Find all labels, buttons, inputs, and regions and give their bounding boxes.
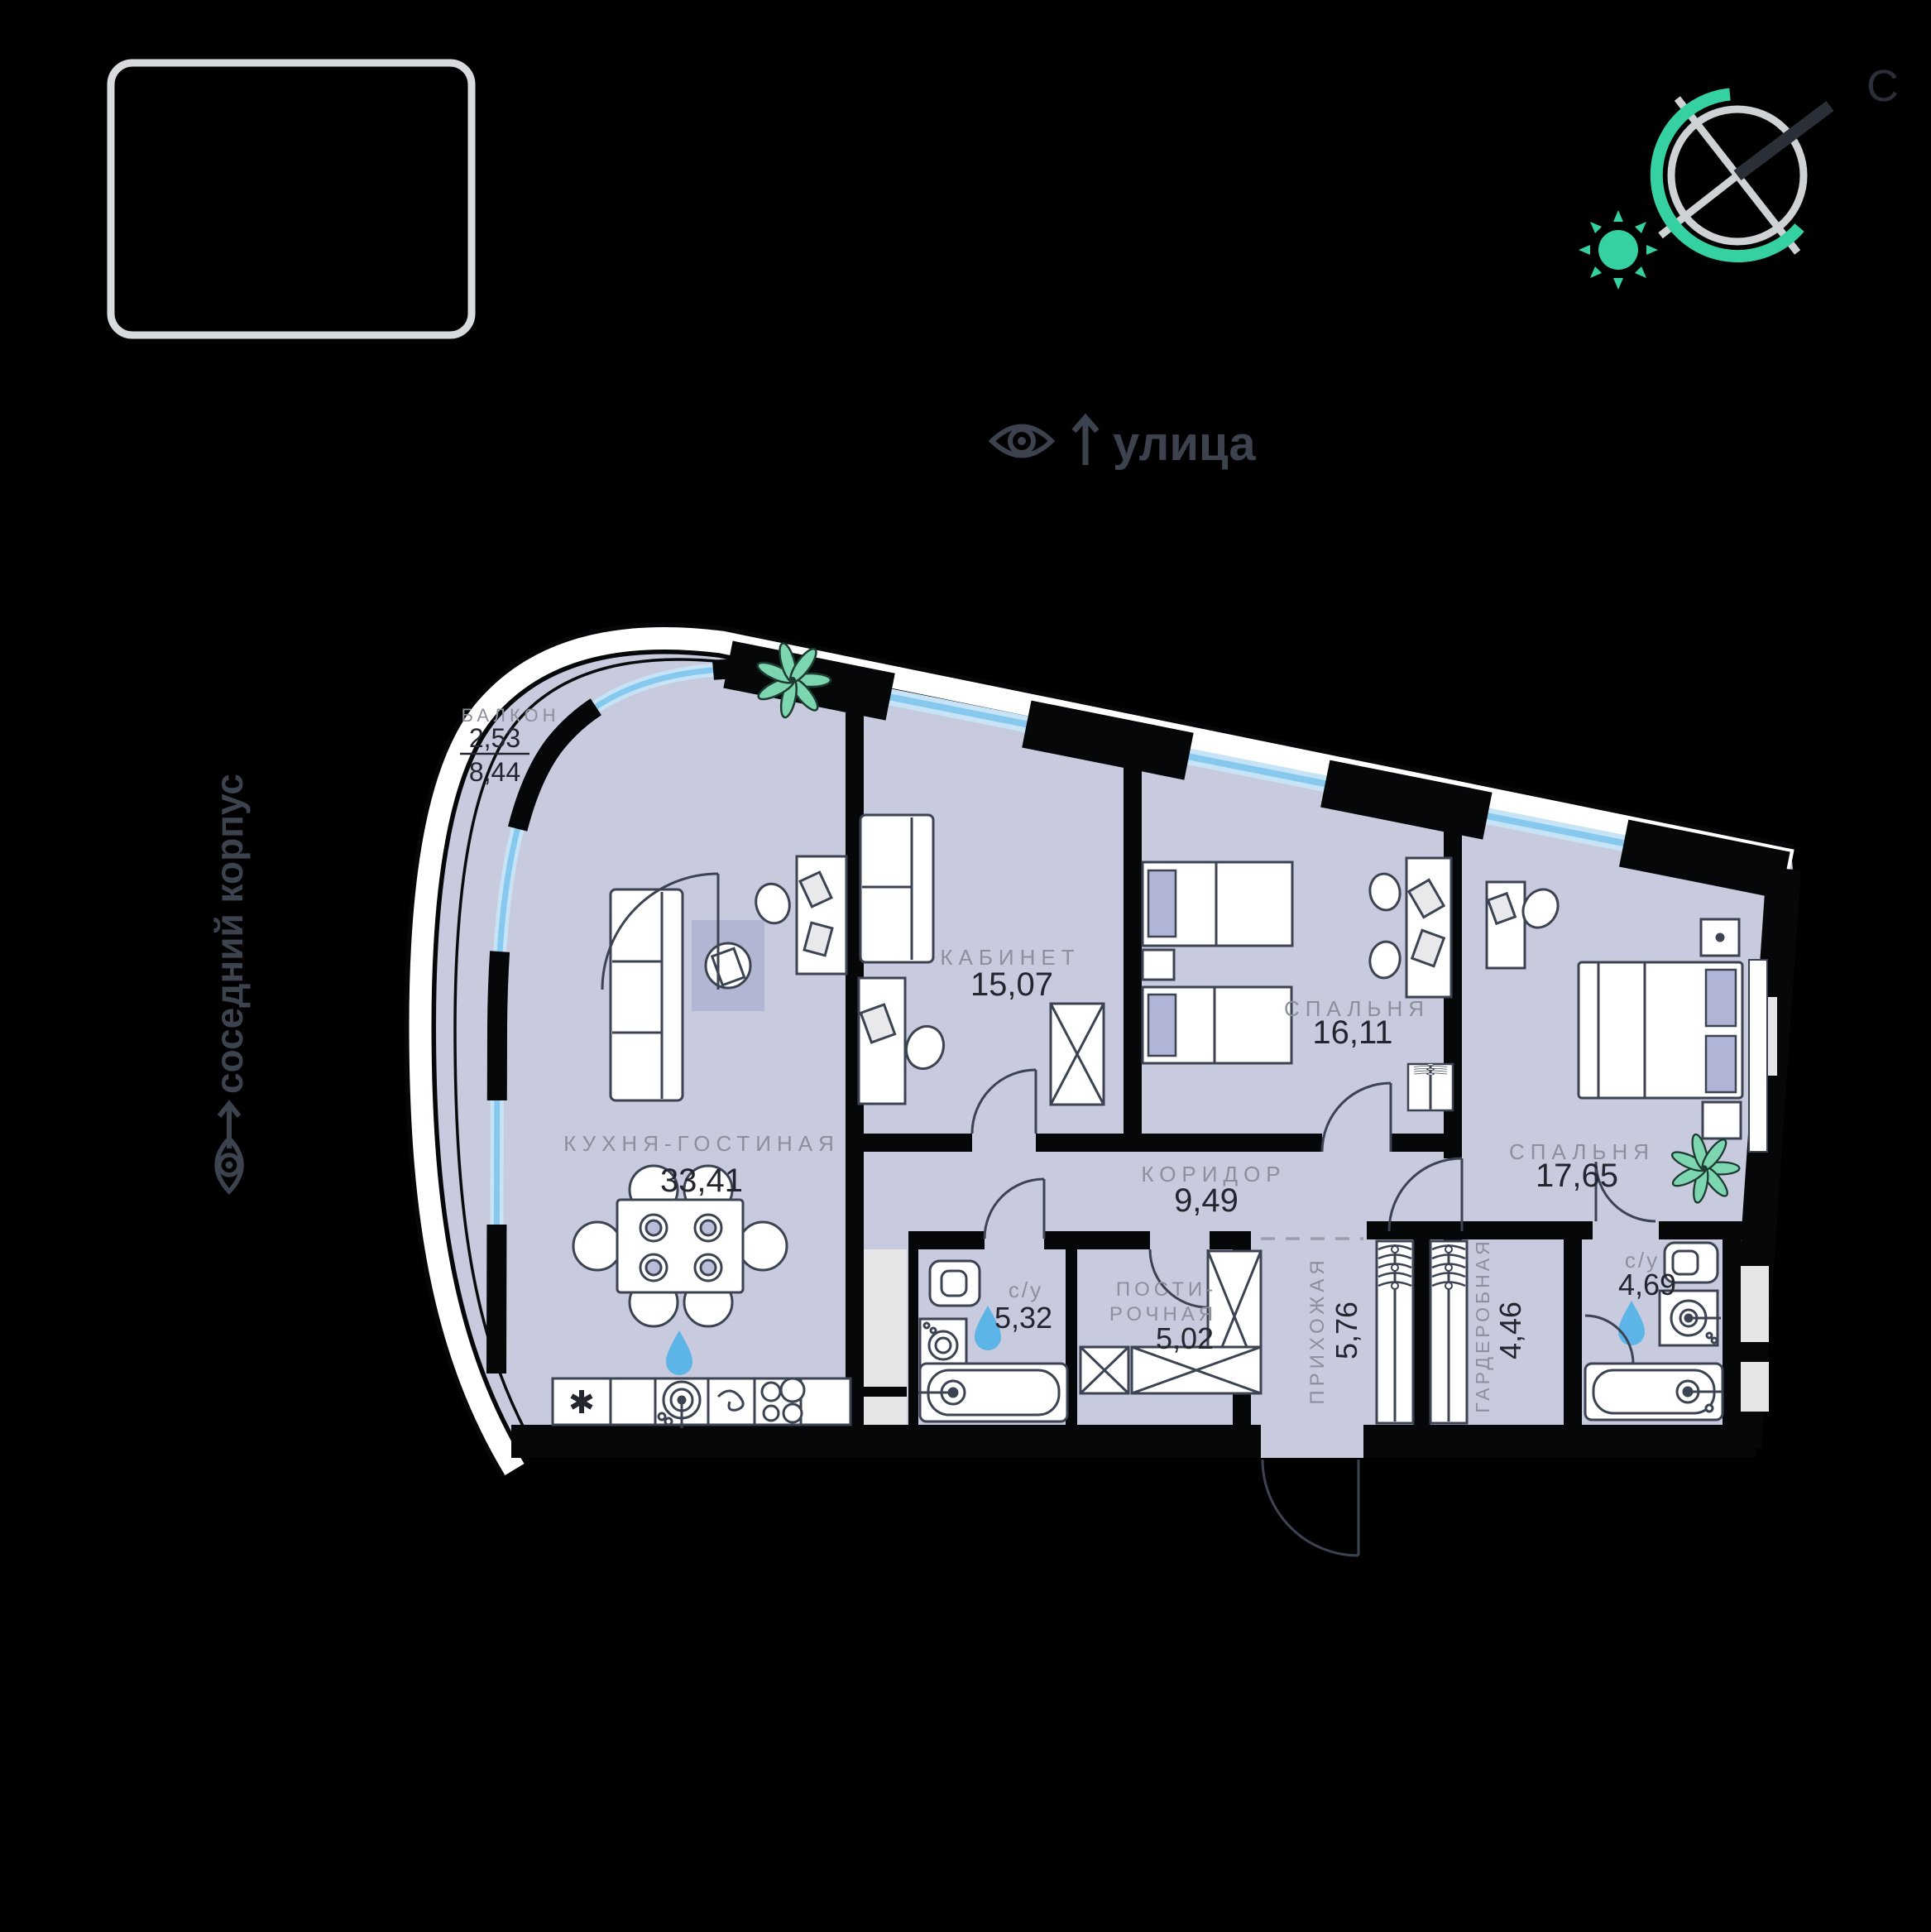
room-area-office: 15,07: [970, 966, 1053, 1003]
floorplan-page: БАЛКОН 2,53 8,44 КУХНЯ-ГОСТИНАЯ 33,41 КА…: [0, 0, 1931, 1932]
room-label-kitchen-living: КУХНЯ-ГОСТИНАЯ: [563, 1131, 840, 1156]
room-area-balcony-upper: 2,53: [469, 723, 520, 753]
room-label-hallway: ПРИХОЖАЯ: [1306, 1256, 1329, 1404]
compass-north-label: С: [1866, 61, 1899, 111]
room-area-hallway: 5,76: [1330, 1302, 1363, 1359]
window-sill-bedroom2: [1749, 960, 1767, 1152]
neighbor-label: соседний корпус: [208, 774, 251, 1094]
room-label-bathroom1: с/у: [1009, 1278, 1043, 1302]
room-label-wardrobe: ГАРДЕРОБНАЯ: [1472, 1238, 1493, 1412]
entrance-floor: [1261, 1425, 1363, 1458]
wall-bottom-right: [1363, 1425, 1756, 1458]
wall-bottom-left: [511, 1425, 1261, 1458]
room-area-bedroom1: 16,11: [1312, 1014, 1392, 1051]
building-location-badge: [111, 63, 472, 335]
room-area-bathroom2: 4,69: [1618, 1268, 1676, 1302]
room-area-bathroom1: 5,32: [994, 1301, 1052, 1335]
room-area-balcony-lower: 8,44: [469, 757, 520, 787]
room-label-laundry-1: ПОСТИ-: [1116, 1278, 1217, 1301]
street-label: улица: [1113, 417, 1256, 471]
room-area-corridor: 9,49: [1174, 1182, 1239, 1219]
room-area-wardrobe: 4,46: [1493, 1302, 1527, 1359]
room-area-laundry: 5,02: [1156, 1321, 1214, 1355]
room-area-bedroom2: 17,65: [1536, 1158, 1618, 1194]
room-area-kitchen-living: 33,41: [660, 1163, 743, 1199]
